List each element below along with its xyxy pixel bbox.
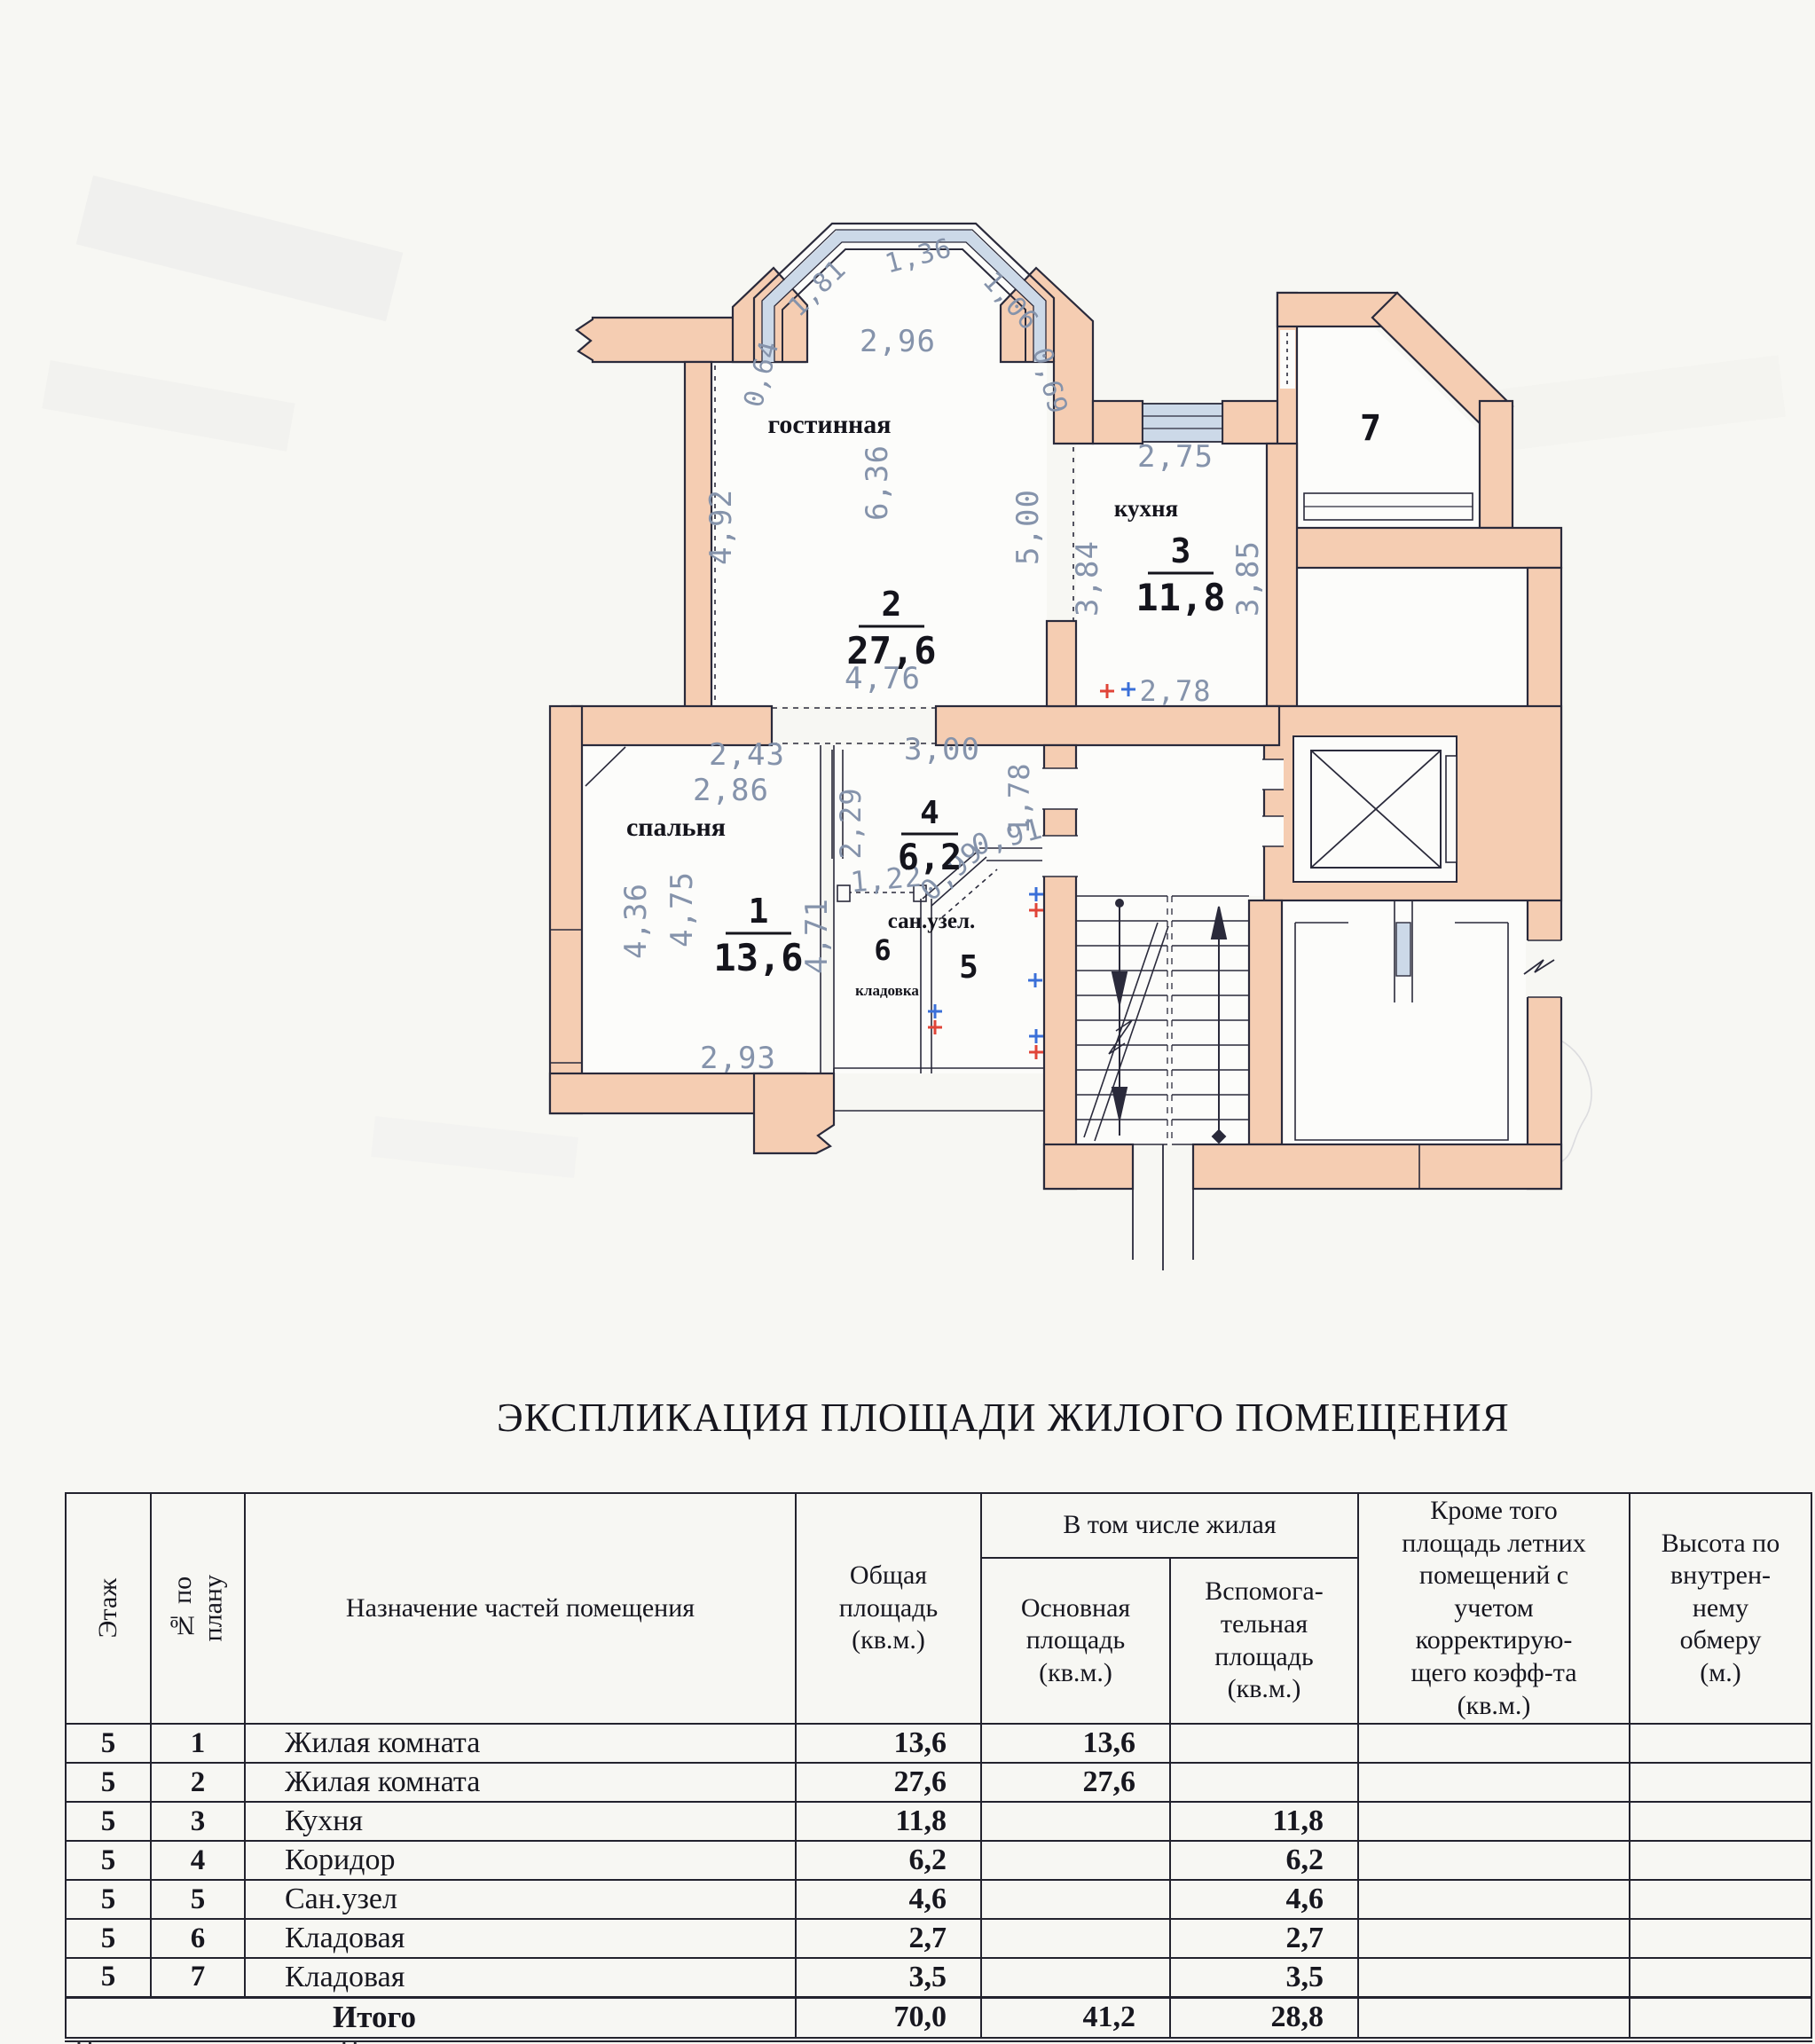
dim: 4,75 [664, 871, 700, 947]
dim: 2,75 [1137, 439, 1214, 475]
room-label-living: гостинная [767, 410, 891, 439]
table-row: 5 6 Кладовая 2,7 2,7 [66, 1919, 1811, 1958]
dim: 4,92 [703, 489, 739, 565]
col-header-aux: Вспомога- тельная площадь (кв.м.) [1170, 1558, 1358, 1724]
room-area-hall: 6,2 [898, 837, 962, 878]
col-header-floor: Этаж [66, 1493, 151, 1724]
dim: 3,00 [904, 732, 980, 767]
dim: 3,85 [1230, 540, 1266, 617]
table-row: 5 3 Кухня 11,8 11,8 [66, 1802, 1811, 1841]
room-number-hall: 4 [920, 795, 939, 831]
room-number-storage6: 6 [874, 933, 891, 967]
room-number-bedroom: 1 [749, 892, 769, 931]
col-header-total: Общая площадь (кв.м.) [796, 1493, 981, 1724]
room-number-san: 5 [959, 949, 978, 986]
floor-plan: 0,64 1,81 1,36 1,06 0,69 2,96 4,92 6,36 … [0, 0, 1815, 1384]
dim: 4,36 [618, 883, 654, 959]
room-number-kitchen: 3 [1171, 531, 1191, 570]
wall-kitchen-right [1267, 444, 1297, 706]
room-label-storage6: кладовка [855, 982, 919, 999]
wall-corner-break [754, 1073, 834, 1153]
table-row: 5 2 Жилая комната 27,6 27,6 [66, 1763, 1811, 1802]
wall-stair-left [1044, 745, 1076, 1189]
wall-room7-bottom [1277, 528, 1561, 568]
col-header-incl-living: В том числе жилая [981, 1493, 1358, 1558]
elevator-shaft [1293, 736, 1457, 882]
table-row: 5 1 Жилая комната 13,6 13,6 [66, 1724, 1811, 1763]
dim: 2,96 [860, 324, 936, 359]
dim: 2,43 [709, 737, 785, 773]
dim: 3,84 [1070, 540, 1105, 617]
total-area: 70,0 [796, 1997, 981, 2040]
table-row: 5 4 Коридор 6,2 6,2 [66, 1841, 1811, 1880]
wall-bedroom-left [550, 706, 582, 1113]
dim: 5,00 [1010, 489, 1046, 565]
scanned-document-page: 0,64 1,81 1,36 1,06 0,69 2,96 4,92 6,36 … [0, 0, 1815, 2044]
col-header-height: Высота по внутрен- нему обмеру (м.) [1630, 1493, 1811, 1724]
dim: 2,93 [700, 1041, 776, 1076]
total-main: 41,2 [981, 1997, 1170, 2040]
room-number-storage7: 7 [1360, 408, 1381, 449]
dim: 2,29 [834, 787, 868, 859]
page-title: ЭКСПЛИКАЦИЯ ПЛОЩАДИ ЖИЛОГО ПОМЕЩЕНИЯ [497, 1395, 1490, 1441]
room-number-living: 2 [882, 585, 902, 624]
header-row-1: Этаж № по плану Назначение частей помеще… [66, 1493, 1811, 1558]
col-header-purpose: Назначение частей помещения [245, 1493, 796, 1724]
dim: 2,86 [693, 773, 769, 808]
col-header-main: Основная площадь (кв.м.) [981, 1558, 1170, 1724]
explication-table: Этаж № по плану Назначение частей помеще… [65, 1492, 1812, 2042]
right-section-window [1396, 923, 1410, 976]
col-header-summer: Кроме того площадь летних помещений с уч… [1358, 1493, 1630, 1724]
room-area-bedroom: 13,6 [713, 936, 803, 979]
room-label-san: сан.узел. [888, 909, 975, 933]
dim: 4,71 [799, 898, 835, 974]
footnote-fragment: Примечание. Площадь [75, 2033, 509, 2044]
room-label-kitchen: кухня [1114, 495, 1178, 522]
table-row: 5 7 Кладовая 3,5 3,5 [66, 1958, 1811, 1997]
dim: 6,36 [860, 444, 895, 521]
table-row: 5 5 Сан.узел 4,6 4,6 [66, 1880, 1811, 1919]
wall-stair-bottom-right [1193, 1144, 1561, 1189]
wall-kitchen-bottom [936, 706, 1279, 745]
col-header-plan-no: № по плану [151, 1493, 245, 1724]
room-label-bedroom: спальня [626, 813, 726, 842]
room-area-living: 27,6 [846, 629, 936, 672]
wall-stair-bottom-left [1044, 1144, 1133, 1189]
wall-room7-right [1480, 401, 1512, 528]
dim: 2,78 [1139, 674, 1211, 708]
room-area-kitchen: 11,8 [1135, 576, 1225, 619]
total-aux: 28,8 [1170, 1997, 1358, 2040]
entrance-door-lines [1133, 1144, 1193, 1270]
kitchen-window [1143, 404, 1222, 442]
wall-stair-right [1249, 900, 1282, 1144]
